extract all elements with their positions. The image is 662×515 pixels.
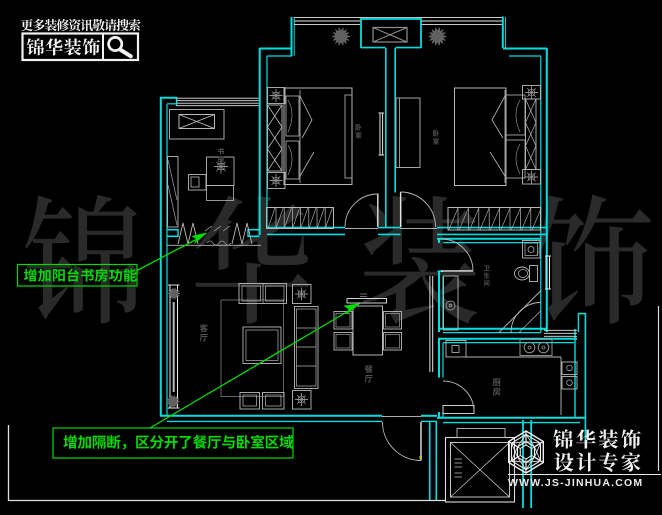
svg-text:WWW.JS-JINHUA.COM: WWW.JS-JINHUA.COM — [508, 477, 643, 489]
